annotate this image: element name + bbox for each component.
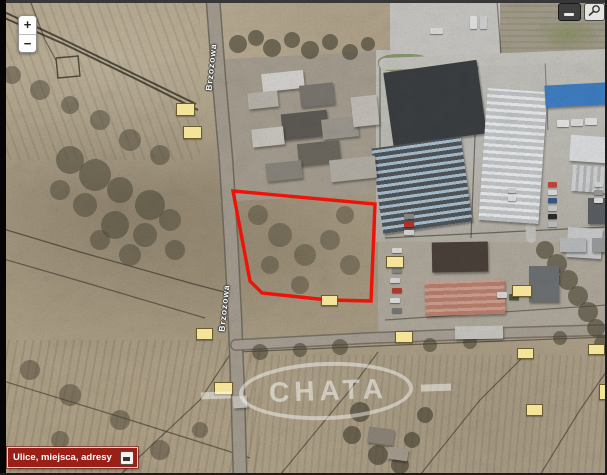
vehicle [390, 278, 400, 283]
field-texture [250, 355, 607, 475]
vehicle [548, 206, 557, 211]
frame-edge [0, 0, 6, 475]
building [478, 88, 547, 224]
vehicle [594, 198, 603, 203]
overview-map-icon [564, 13, 574, 16]
search-bar[interactable]: Ulice, miejsca, adresy [7, 447, 138, 468]
vehicle [390, 298, 400, 303]
cadastre-marker [526, 404, 543, 416]
vehicle [571, 119, 583, 126]
building [529, 266, 559, 302]
building [251, 126, 285, 147]
building [233, 396, 248, 409]
vehicle [404, 222, 414, 227]
cadastre-marker [512, 285, 532, 297]
building [371, 136, 472, 234]
zoom-out-button[interactable]: − [19, 35, 36, 53]
vehicle [404, 214, 414, 219]
building [544, 82, 607, 107]
cadastre-marker [214, 382, 233, 395]
overview-map-button[interactable] [558, 3, 581, 21]
search-input[interactable]: Ulice, miejsca, adresy [8, 452, 120, 463]
vehicle [392, 308, 402, 313]
building [387, 447, 408, 462]
vehicle [508, 196, 516, 201]
cadastre-marker [183, 126, 202, 139]
building [560, 238, 586, 252]
cadastre-marker [517, 348, 534, 359]
vehicle [548, 190, 557, 195]
cadastre-marker [386, 256, 404, 268]
vehicle [548, 198, 557, 203]
cadastre-marker [395, 331, 413, 343]
vehicle [548, 214, 557, 219]
vehicle [392, 288, 402, 293]
vehicle [392, 248, 402, 253]
building [367, 426, 395, 445]
building [571, 165, 607, 193]
vehicle [430, 28, 443, 34]
vehicle [392, 268, 402, 273]
building [351, 95, 380, 128]
vehicle [404, 230, 414, 235]
keyboard-icon[interactable] [120, 451, 134, 465]
vehicle [480, 16, 487, 29]
building [569, 135, 607, 164]
vehicle [557, 120, 569, 127]
vehicle [594, 182, 603, 187]
building [265, 160, 303, 182]
building [455, 326, 503, 340]
building [383, 60, 486, 146]
building [432, 242, 489, 273]
cadastre-marker [196, 328, 213, 340]
fullscreen-button[interactable] [584, 3, 605, 21]
grass-patch [538, 18, 600, 50]
vehicle [470, 16, 477, 29]
vehicle [594, 190, 603, 195]
frame-edge [0, 0, 607, 3]
building [247, 90, 279, 109]
cadastre-marker [176, 103, 195, 116]
cadastre-marker [321, 295, 338, 306]
cadastre-marker [588, 344, 605, 355]
magnifier-icon [585, 4, 602, 18]
vehicle [585, 118, 597, 125]
building [299, 82, 335, 107]
zoom-in-button[interactable]: + [19, 16, 36, 35]
vehicle [548, 182, 557, 187]
vehicle [497, 292, 507, 298]
concrete-pad [390, 3, 510, 59]
vehicle [548, 222, 557, 227]
map-canvas[interactable]: Brzozowa Brzozowa CHATA + − Ulice, miejs… [0, 0, 607, 475]
building [424, 280, 505, 317]
vehicle [508, 188, 516, 193]
zoom-control: + − [18, 15, 37, 53]
